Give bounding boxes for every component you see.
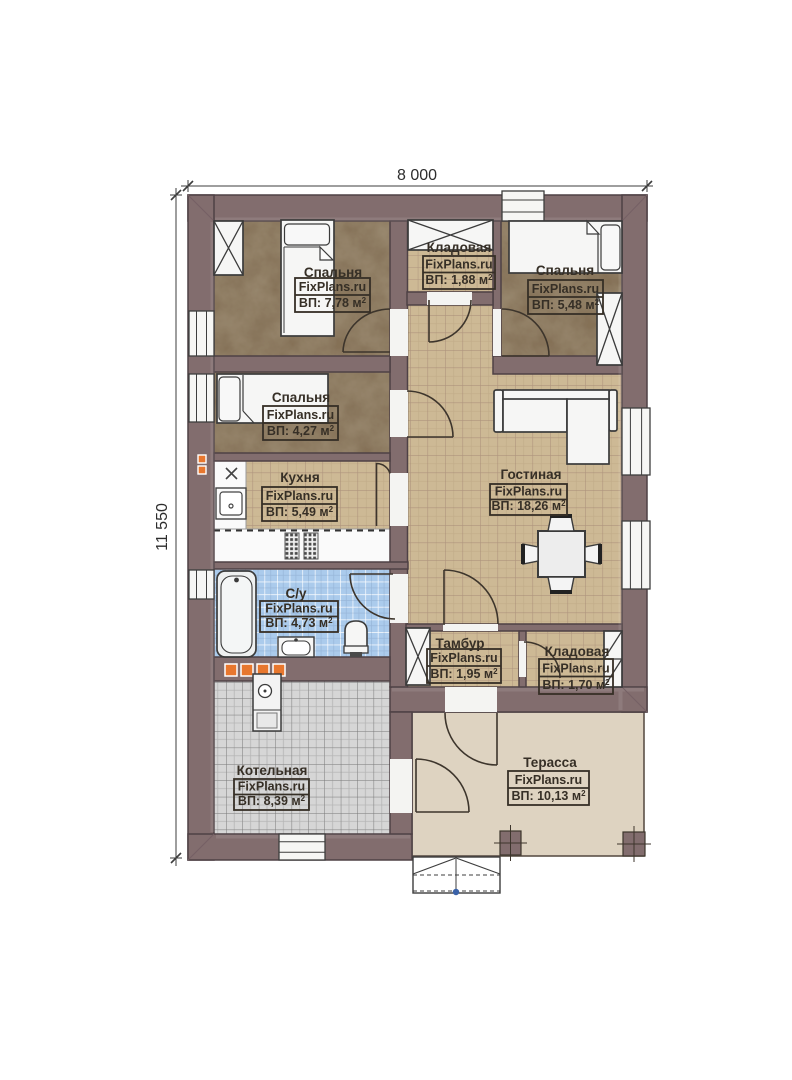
svg-text:ВП: 10,13 м2: ВП: 10,13 м2 <box>511 789 586 803</box>
svg-text:FixPlans.ru: FixPlans.ru <box>265 602 332 616</box>
svg-text:FixPlans.ru: FixPlans.ru <box>299 280 366 294</box>
svg-text:ВП: 1,95 м2: ВП: 1,95 м2 <box>430 667 498 681</box>
svg-text:Кладовая: Кладовая <box>545 644 610 659</box>
svg-text:FixPlans.ru: FixPlans.ru <box>532 282 599 296</box>
svg-text:FixPlans.ru: FixPlans.ru <box>266 489 333 503</box>
svg-text:FixPlans.ru: FixPlans.ru <box>495 485 562 499</box>
svg-text:8 000: 8 000 <box>397 167 437 184</box>
svg-text:ВП: 1,70 м2: ВП: 1,70 м2 <box>542 678 610 692</box>
svg-text:ВП: 18,26 м2: ВП: 18,26 м2 <box>491 499 566 513</box>
svg-text:ВП: 4,73 м2: ВП: 4,73 м2 <box>265 616 333 630</box>
svg-text:Гостиная: Гостиная <box>500 467 561 482</box>
svg-text:FixPlans.ru: FixPlans.ru <box>425 258 492 272</box>
svg-text:С/у: С/у <box>285 586 307 601</box>
svg-text:FixPlans.ru: FixPlans.ru <box>267 408 334 422</box>
svg-text:Котельная: Котельная <box>237 763 308 778</box>
svg-text:ВП: 5,49 м2: ВП: 5,49 м2 <box>266 505 334 519</box>
svg-text:ВП: 7,78 м2: ВП: 7,78 м2 <box>299 296 367 310</box>
svg-text:Кухня: Кухня <box>280 470 319 485</box>
svg-text:FixPlans.ru: FixPlans.ru <box>515 773 582 787</box>
svg-text:FixPlans.ru: FixPlans.ru <box>542 662 609 676</box>
svg-text:Терасса: Терасса <box>523 755 577 770</box>
svg-text:Спальня: Спальня <box>536 263 594 278</box>
svg-text:ВП: 4,27 м2: ВП: 4,27 м2 <box>267 424 335 438</box>
svg-text:FixPlans.ru: FixPlans.ru <box>430 651 497 665</box>
svg-text:FixPlans.ru: FixPlans.ru <box>238 780 305 794</box>
svg-text:ВП: 8,39 м2: ВП: 8,39 м2 <box>238 794 306 808</box>
svg-text:11 550: 11 550 <box>154 503 171 551</box>
svg-text:Спальня: Спальня <box>272 390 330 405</box>
svg-text:Кладовая: Кладовая <box>427 240 492 255</box>
svg-text:ВП: 5,48 м2: ВП: 5,48 м2 <box>532 298 600 312</box>
svg-text:ВП: 1,88 м2: ВП: 1,88 м2 <box>425 273 493 287</box>
